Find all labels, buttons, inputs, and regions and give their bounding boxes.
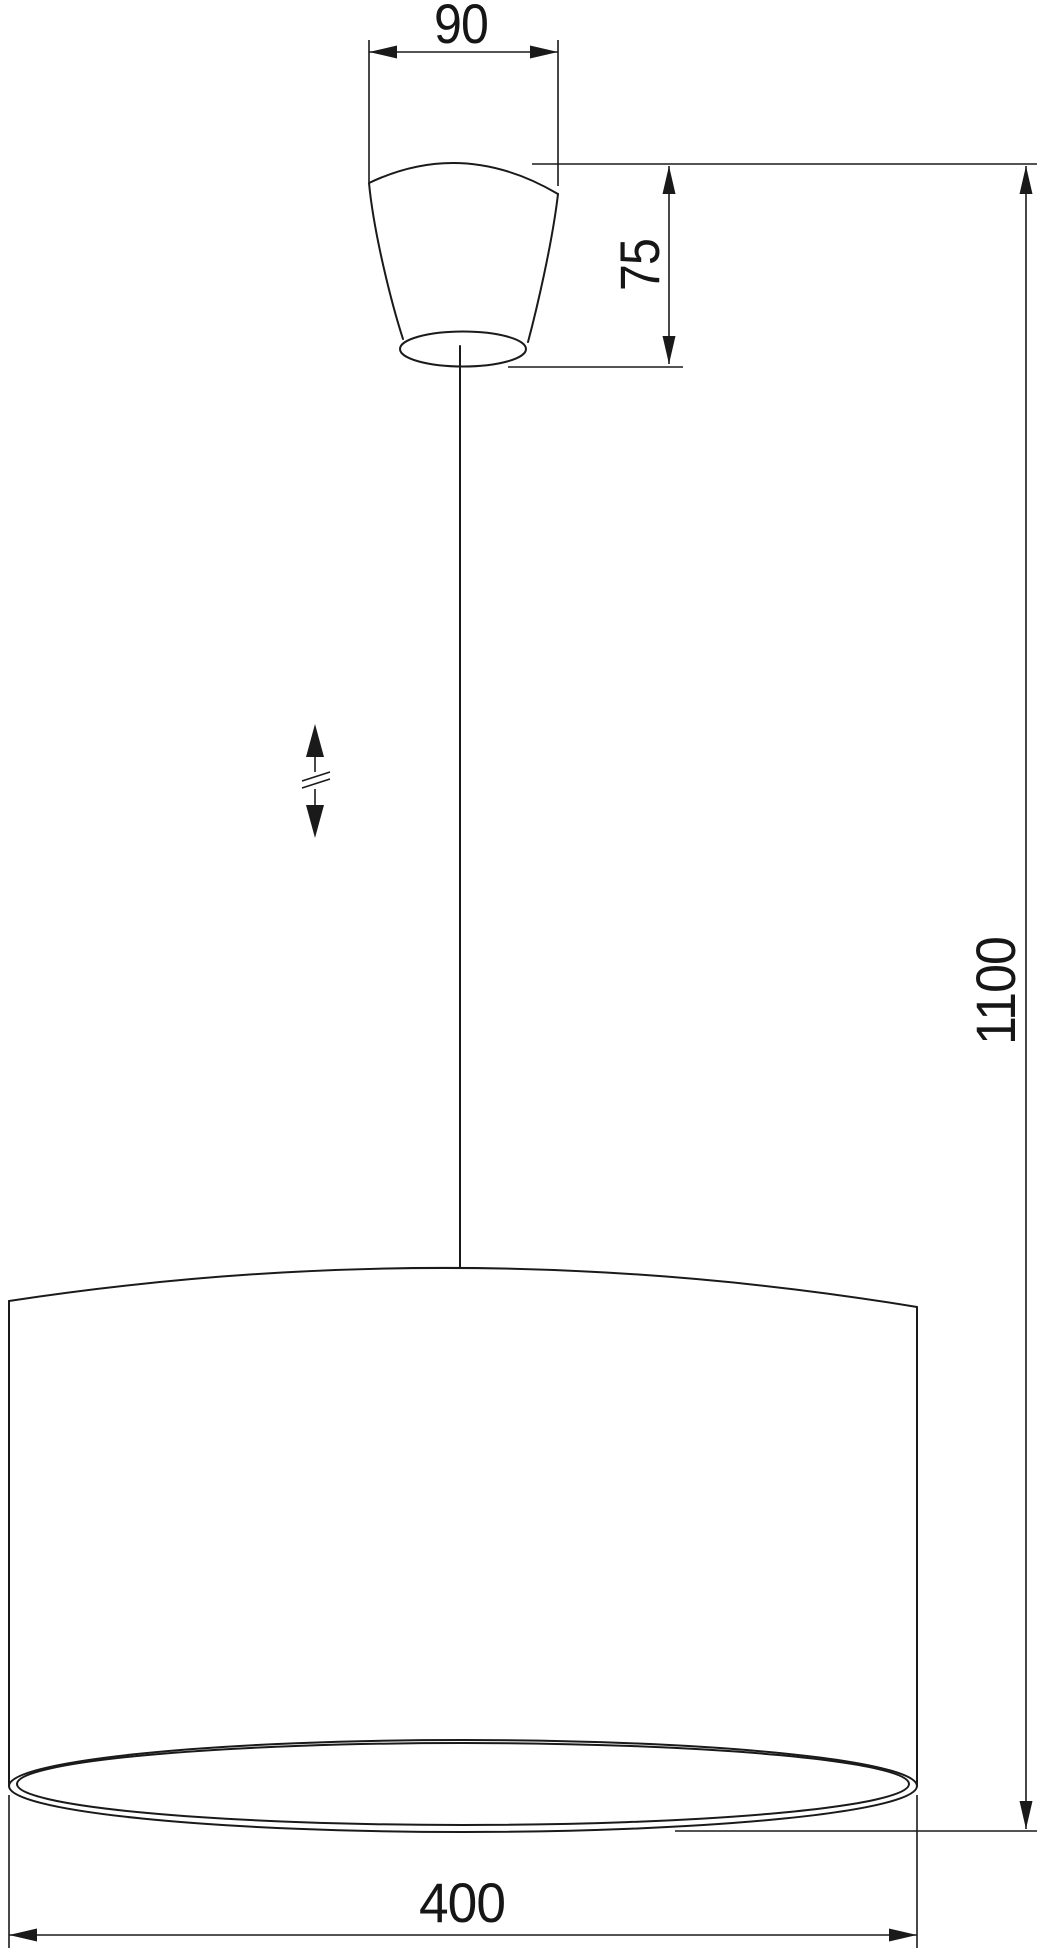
shade-bottom-rim-inner [17,1743,909,1825]
canopy [369,163,558,367]
canopy-right-side [528,194,558,342]
dimension-label-1100: 1100 [964,937,1027,1045]
dimension-label-75: 75 [608,239,671,291]
pendant-lamp-drawing: 90 75 1100 400 [0,0,1040,1952]
adjust-arrow-down-head [306,805,324,838]
height-adjustment-icon [302,724,330,838]
dimension-overall-height: 1100 [964,166,1027,1829]
canopy-left-side [369,183,403,339]
dimension-label-90: 90 [434,0,488,55]
canopy-bottom-rim [400,332,526,367]
adjust-arrow-up-head [306,724,324,757]
dimension-label-400: 400 [419,1871,505,1934]
dimension-canopy-width: 90 [369,0,558,186]
drawing-canvas: 90 75 1100 400 [0,0,1040,1952]
dimension-canopy-height: 75 [608,166,671,364]
lampshade [9,1268,917,1832]
shade-bottom-rim-outer [9,1740,917,1832]
shade-top-arc [9,1268,917,1307]
canopy-top-arc [369,163,558,194]
